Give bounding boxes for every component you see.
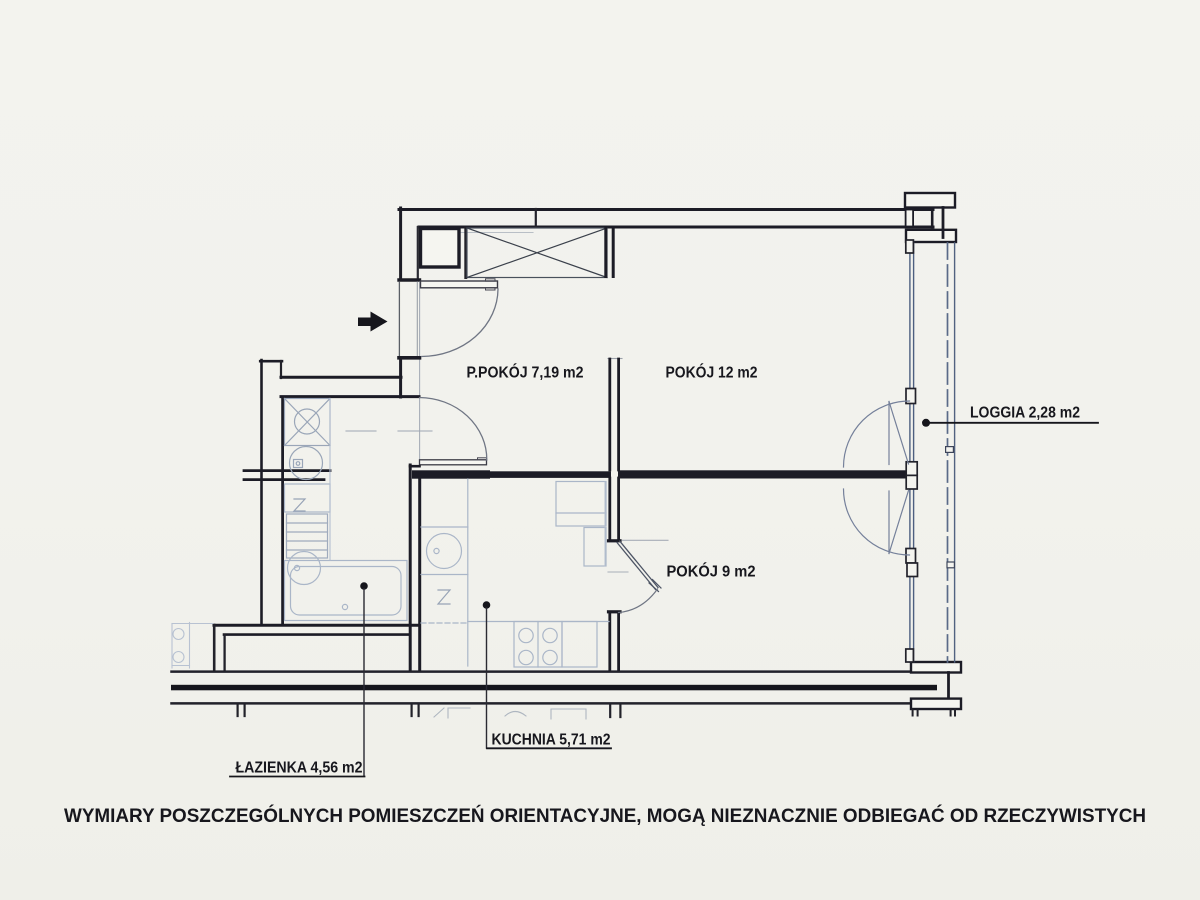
svg-text:WYMIARY POSZCZEGÓLNYCH POMIESZ: WYMIARY POSZCZEGÓLNYCH POMIESZCZEŃ ORIEN… [64,803,1146,827]
svg-text:LOGGIA 2,28 m2: LOGGIA 2,28 m2 [970,405,1080,422]
svg-text:POKÓJ 9 m2: POKÓJ 9 m2 [667,563,756,581]
svg-text:KUCHNIA 5,71 m2: KUCHNIA 5,71 m2 [492,732,611,749]
svg-text:ŁAZIENKA 4,56 m2: ŁAZIENKA 4,56 m2 [236,760,363,777]
svg-text:P.POKÓJ 7,19 m2: P.POKÓJ 7,19 m2 [467,364,584,382]
svg-text:POKÓJ 12 m2: POKÓJ 12 m2 [666,364,758,382]
